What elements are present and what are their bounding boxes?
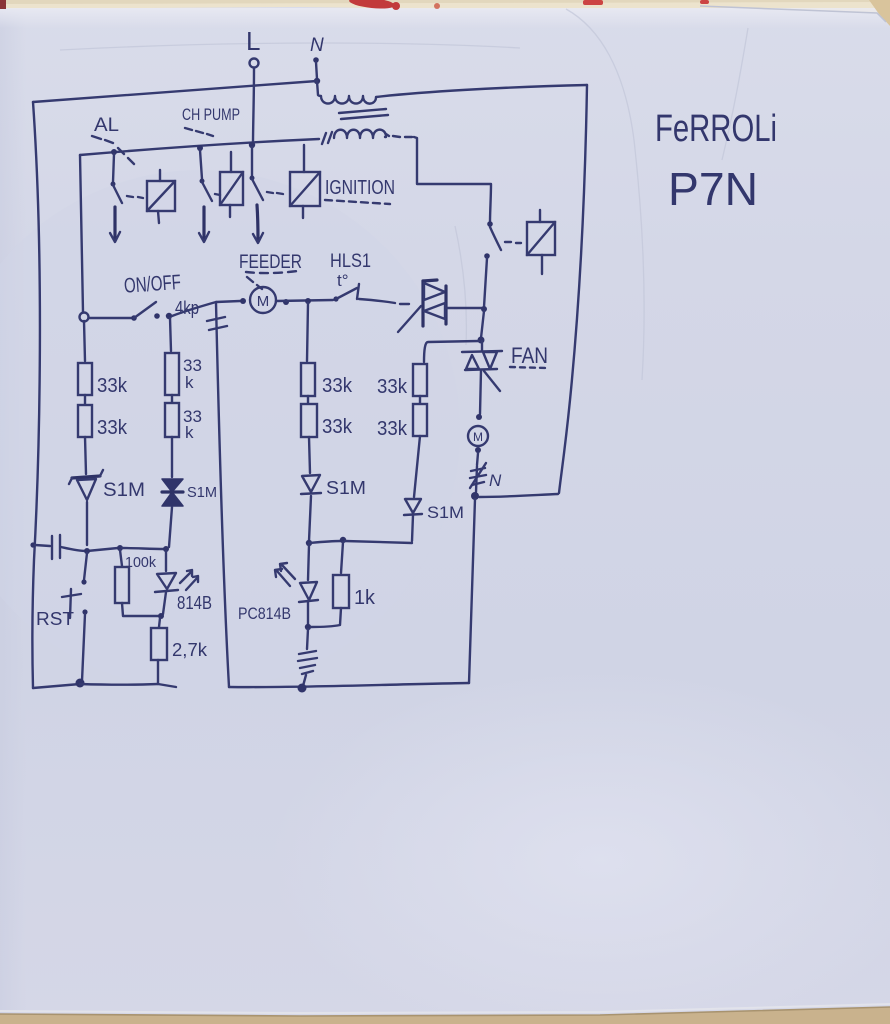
- svg-text:CH PUMP: CH PUMP: [182, 105, 240, 124]
- svg-text:AL: AL: [94, 115, 119, 136]
- svg-text:33k: 33k: [377, 418, 408, 440]
- svg-text:N: N: [310, 35, 324, 56]
- svg-text:33k: 33k: [97, 417, 128, 439]
- svg-text:k: k: [185, 423, 194, 442]
- svg-text:814B: 814B: [177, 593, 212, 613]
- svg-text:FEEDER: FEEDER: [239, 252, 302, 273]
- svg-text:IGNITION: IGNITION: [325, 177, 395, 199]
- svg-text:2,7k: 2,7k: [172, 640, 208, 660]
- svg-text:33k: 33k: [377, 376, 408, 398]
- svg-text:FeRROLi: FeRROLi: [655, 108, 777, 150]
- svg-text:33k: 33k: [322, 375, 353, 397]
- svg-text:M: M: [257, 293, 270, 310]
- svg-text:RST: RST: [36, 609, 74, 629]
- svg-text:ON/OFF: ON/OFF: [123, 271, 181, 298]
- svg-text:S1M: S1M: [326, 478, 366, 498]
- svg-text:HLS1: HLS1: [330, 251, 371, 272]
- svg-text:PC814B: PC814B: [238, 604, 291, 623]
- svg-text:P7N: P7N: [668, 163, 758, 215]
- svg-text:100k: 100k: [125, 554, 156, 571]
- svg-text:M: M: [473, 430, 483, 444]
- svg-text:L: L: [246, 26, 260, 56]
- svg-text:N: N: [489, 471, 502, 490]
- svg-text:S1M: S1M: [427, 503, 464, 522]
- svg-text:t°: t°: [337, 271, 349, 290]
- svg-text:33k: 33k: [322, 416, 353, 438]
- svg-text:FAN: FAN: [511, 343, 548, 368]
- svg-text:S1M: S1M: [187, 484, 217, 501]
- svg-text:33k: 33k: [97, 375, 128, 397]
- svg-text:S1M: S1M: [103, 480, 145, 501]
- svg-text:k: k: [185, 373, 194, 392]
- svg-text:1k: 1k: [354, 587, 376, 609]
